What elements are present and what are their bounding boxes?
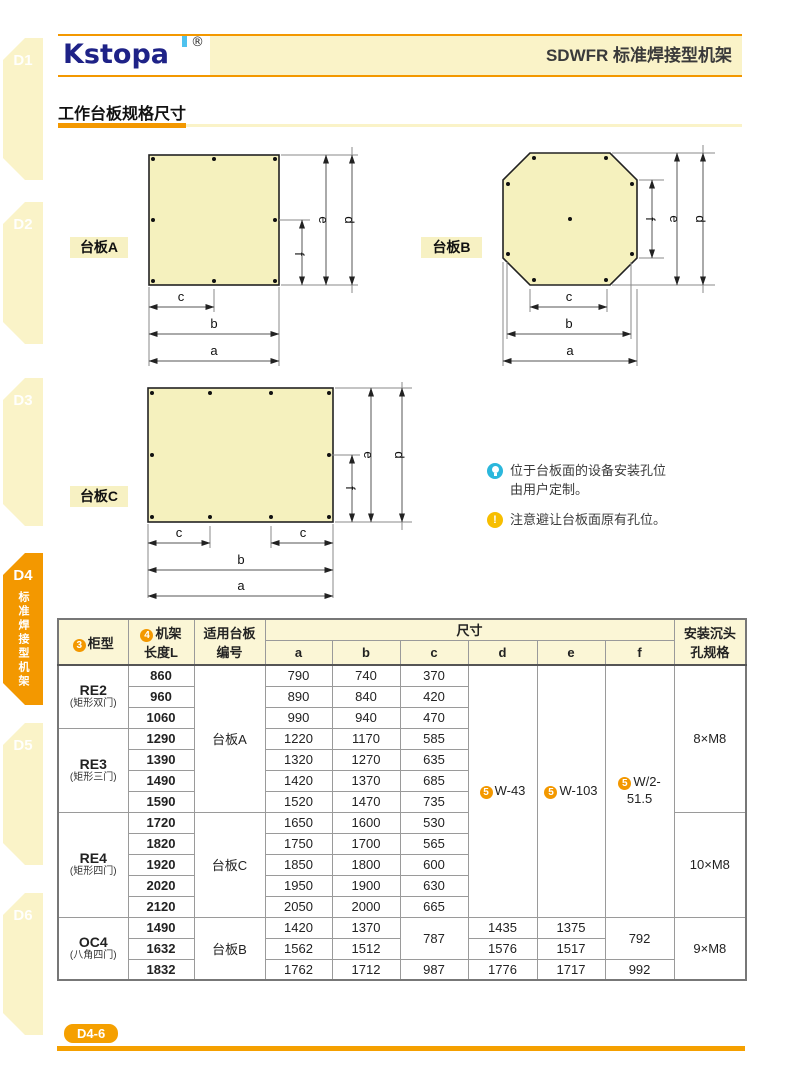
- dim-label-d: d: [342, 216, 357, 223]
- cell-a: 1320: [265, 749, 332, 770]
- cell-b: 1700: [332, 833, 400, 854]
- col-a: a: [265, 640, 332, 665]
- cell-length: 1820: [128, 833, 194, 854]
- cell-d: 1776: [468, 959, 537, 980]
- cell-b: 2000: [332, 896, 400, 917]
- cell-b: 1512: [332, 938, 400, 959]
- dim-label-b: b: [237, 552, 244, 567]
- tab-label: D6: [13, 907, 32, 924]
- cell-cabinet-re2: RE2(矩形双门): [58, 665, 128, 728]
- table-row: RE2(矩形双门) 860 台板A 790 740 370 5W-43 5W-1…: [58, 665, 746, 686]
- cell-a: 890: [265, 686, 332, 707]
- cell-b: 1600: [332, 812, 400, 833]
- cell-hole-8m8: 8×M8: [674, 665, 746, 812]
- cell-a: 1650: [265, 812, 332, 833]
- cell-a: 1762: [265, 959, 332, 980]
- page-number-badge: D4-6: [64, 1024, 118, 1043]
- cell-hole-9m8: 9×M8: [674, 917, 746, 980]
- tab-label: D2: [13, 216, 32, 233]
- page-title: SDWFR 标准焊接型机架: [546, 36, 732, 75]
- logo-accent-tick: [182, 36, 187, 47]
- registered-mark: ®: [191, 35, 204, 50]
- tab-label: D1: [13, 52, 32, 69]
- dim-label-a: a: [237, 578, 245, 593]
- cell-c: 665: [400, 896, 468, 917]
- tab-subtitle: 标准焊接型机架: [16, 591, 30, 689]
- footer-rule: [57, 1046, 745, 1051]
- dim-label-d: d: [392, 451, 407, 458]
- cell-length: 1060: [128, 707, 194, 728]
- cell-c: 370: [400, 665, 468, 686]
- cell-a: 1950: [265, 875, 332, 896]
- cell-e: 1517: [537, 938, 605, 959]
- tab-label: D5: [13, 737, 32, 754]
- plate-a-shape: [149, 155, 279, 285]
- lightbulb-icon: [487, 463, 503, 479]
- col-d: d: [468, 640, 537, 665]
- dim-label-a: a: [566, 343, 574, 358]
- dim-label-c-left: c: [176, 525, 183, 540]
- cell-length: 960: [128, 686, 194, 707]
- cell-e: 1375: [537, 917, 605, 938]
- note-tip: 位于台板面的设备安装孔位 由用户定制。: [487, 462, 749, 500]
- plate-c-shape: [148, 388, 333, 522]
- cell-length: 1390: [128, 749, 194, 770]
- section-underline-accent: [58, 123, 186, 128]
- cell-d-merged: 5W-43: [468, 665, 537, 917]
- cell-c: 565: [400, 833, 468, 854]
- cell-b: 1270: [332, 749, 400, 770]
- col-hole: 安装沉头孔规格: [674, 619, 746, 665]
- cell-b: 1470: [332, 791, 400, 812]
- cell-b: 1370: [332, 770, 400, 791]
- cell-plate-b: 台板B: [194, 917, 265, 980]
- cell-length: 2120: [128, 896, 194, 917]
- brand-logo: Kstopa ®: [63, 39, 169, 70]
- cell-a: 1750: [265, 833, 332, 854]
- cell-c: 735: [400, 791, 468, 812]
- cell-plate-a: 台板A: [194, 665, 265, 812]
- cell-a: 990: [265, 707, 332, 728]
- cell-length: 1490: [128, 917, 194, 938]
- logo-wordmark: Kstopa: [63, 39, 169, 70]
- cell-cabinet-re4: RE4(矩形四门): [58, 812, 128, 917]
- cell-a: 1220: [265, 728, 332, 749]
- col-cabinet: 3柜型: [58, 619, 128, 665]
- cell-c: 987: [400, 959, 468, 980]
- cell-c: 600: [400, 854, 468, 875]
- sidebar-tab-d5[interactable]: D5: [3, 723, 43, 865]
- cell-e: 1717: [537, 959, 605, 980]
- header-band: Kstopa ® SDWFR 标准焊接型机架: [58, 36, 742, 75]
- cell-c: 630: [400, 875, 468, 896]
- cell-length: 1832: [128, 959, 194, 980]
- cell-a: 1562: [265, 938, 332, 959]
- cell-c: 635: [400, 749, 468, 770]
- cell-a: 1850: [265, 854, 332, 875]
- dim-label-b: b: [210, 316, 217, 331]
- col-f: f: [605, 640, 674, 665]
- cell-b: 740: [332, 665, 400, 686]
- plate-b-diagram: f e d c b a: [400, 142, 720, 375]
- header-bottom-rule: [58, 75, 742, 77]
- cell-length: 2020: [128, 875, 194, 896]
- cell-c: 470: [400, 707, 468, 728]
- dim-label-c: c: [566, 289, 573, 304]
- cell-b: 1712: [332, 959, 400, 980]
- cell-length: 1632: [128, 938, 194, 959]
- cell-c: 530: [400, 812, 468, 833]
- cell-length: 1290: [128, 728, 194, 749]
- cell-a: 790: [265, 665, 332, 686]
- cell-b: 840: [332, 686, 400, 707]
- col-length: 4机架长度L: [128, 619, 194, 665]
- dim-label-d: d: [693, 215, 708, 222]
- dim-label-c: c: [178, 289, 185, 304]
- col-plate: 适用台板编号: [194, 619, 265, 665]
- cell-c: 420: [400, 686, 468, 707]
- plate-c-diagram: f e d c c b a: [60, 382, 420, 600]
- dim-label-e: e: [667, 215, 682, 222]
- cell-length: 1920: [128, 854, 194, 875]
- sidebar-tab-d6[interactable]: D6: [3, 893, 43, 1035]
- cell-length: 1590: [128, 791, 194, 812]
- cell-c: 685: [400, 770, 468, 791]
- note-tip-text: 位于台板面的设备安装孔位 由用户定制。: [510, 462, 666, 500]
- table-row: 1832 1762 1712 987 1776 1717 992: [58, 959, 746, 980]
- cell-d: 1576: [468, 938, 537, 959]
- section-title: 工作台板规格尺寸: [58, 100, 186, 124]
- note-warning-text: 注意避让台板面原有孔位。: [510, 511, 666, 530]
- notes-block: 位于台板面的设备安装孔位 由用户定制。 ! 注意避让台板面原有孔位。: [487, 462, 749, 541]
- section-underline: [186, 124, 742, 127]
- tab-label: D3: [13, 392, 32, 409]
- dim-label-f: f: [292, 252, 307, 256]
- cell-length: 1720: [128, 812, 194, 833]
- cell-c: 585: [400, 728, 468, 749]
- sidebar-tab-d4-active[interactable]: D4 标准焊接型机架: [3, 553, 43, 705]
- cell-a: 1420: [265, 917, 332, 938]
- sidebar-tab-d1[interactable]: D1: [3, 38, 43, 180]
- sidebar-tab-d2[interactable]: D2: [3, 202, 43, 344]
- cell-length: 860: [128, 665, 194, 686]
- cell-hole-10m8: 10×M8: [674, 812, 746, 917]
- table-row: OC4(八角四门) 1490 台板B 1420 1370 787 1435 13…: [58, 917, 746, 938]
- cell-f-merged: 5W/2-51.5: [605, 665, 674, 917]
- dim-label-a: a: [210, 343, 218, 358]
- cell-a: 2050: [265, 896, 332, 917]
- cell-c-merged: 787: [400, 917, 468, 959]
- sidebar-tab-d3[interactable]: D3: [3, 378, 43, 526]
- spec-table: 3柜型 4机架长度L 适用台板编号 尺寸 安装沉头孔规格 a b c d e f…: [57, 618, 747, 981]
- cell-d: 1435: [468, 917, 537, 938]
- cell-e-merged: 5W-103: [537, 665, 605, 917]
- catalog-page: D1 D2 D3 D4 标准焊接型机架 D5 D6 Kstopa ® SDWFR…: [0, 0, 800, 1086]
- cell-f: 992: [605, 959, 674, 980]
- cell-a: 1420: [265, 770, 332, 791]
- tab-label: D4: [13, 567, 32, 584]
- cell-plate-c: 台板C: [194, 812, 265, 917]
- col-size-group: 尺寸: [265, 619, 674, 640]
- col-c: c: [400, 640, 468, 665]
- logo-area: Kstopa ®: [58, 36, 210, 75]
- cell-length: 1490: [128, 770, 194, 791]
- cell-f-merged: 792: [605, 917, 674, 959]
- cell-b: 1900: [332, 875, 400, 896]
- dim-label-b: b: [565, 316, 572, 331]
- cell-cabinet-oc4: OC4(八角四门): [58, 917, 128, 980]
- cell-cabinet-re3: RE3(矩形三门): [58, 728, 128, 812]
- dim-label-f: f: [343, 486, 358, 490]
- cell-b: 1800: [332, 854, 400, 875]
- cell-b: 1370: [332, 917, 400, 938]
- col-e: e: [537, 640, 605, 665]
- plate-a-diagram: f e d c b a: [60, 142, 380, 375]
- dim-label-f: f: [643, 217, 658, 221]
- col-b: b: [332, 640, 400, 665]
- dim-label-e: e: [361, 451, 376, 458]
- note-warning: ! 注意避让台板面原有孔位。: [487, 511, 749, 530]
- cell-b: 940: [332, 707, 400, 728]
- dim-label-e: e: [316, 216, 331, 223]
- warning-icon: !: [487, 512, 503, 528]
- dim-label-c-right: c: [300, 525, 307, 540]
- cell-b: 1170: [332, 728, 400, 749]
- cell-a: 1520: [265, 791, 332, 812]
